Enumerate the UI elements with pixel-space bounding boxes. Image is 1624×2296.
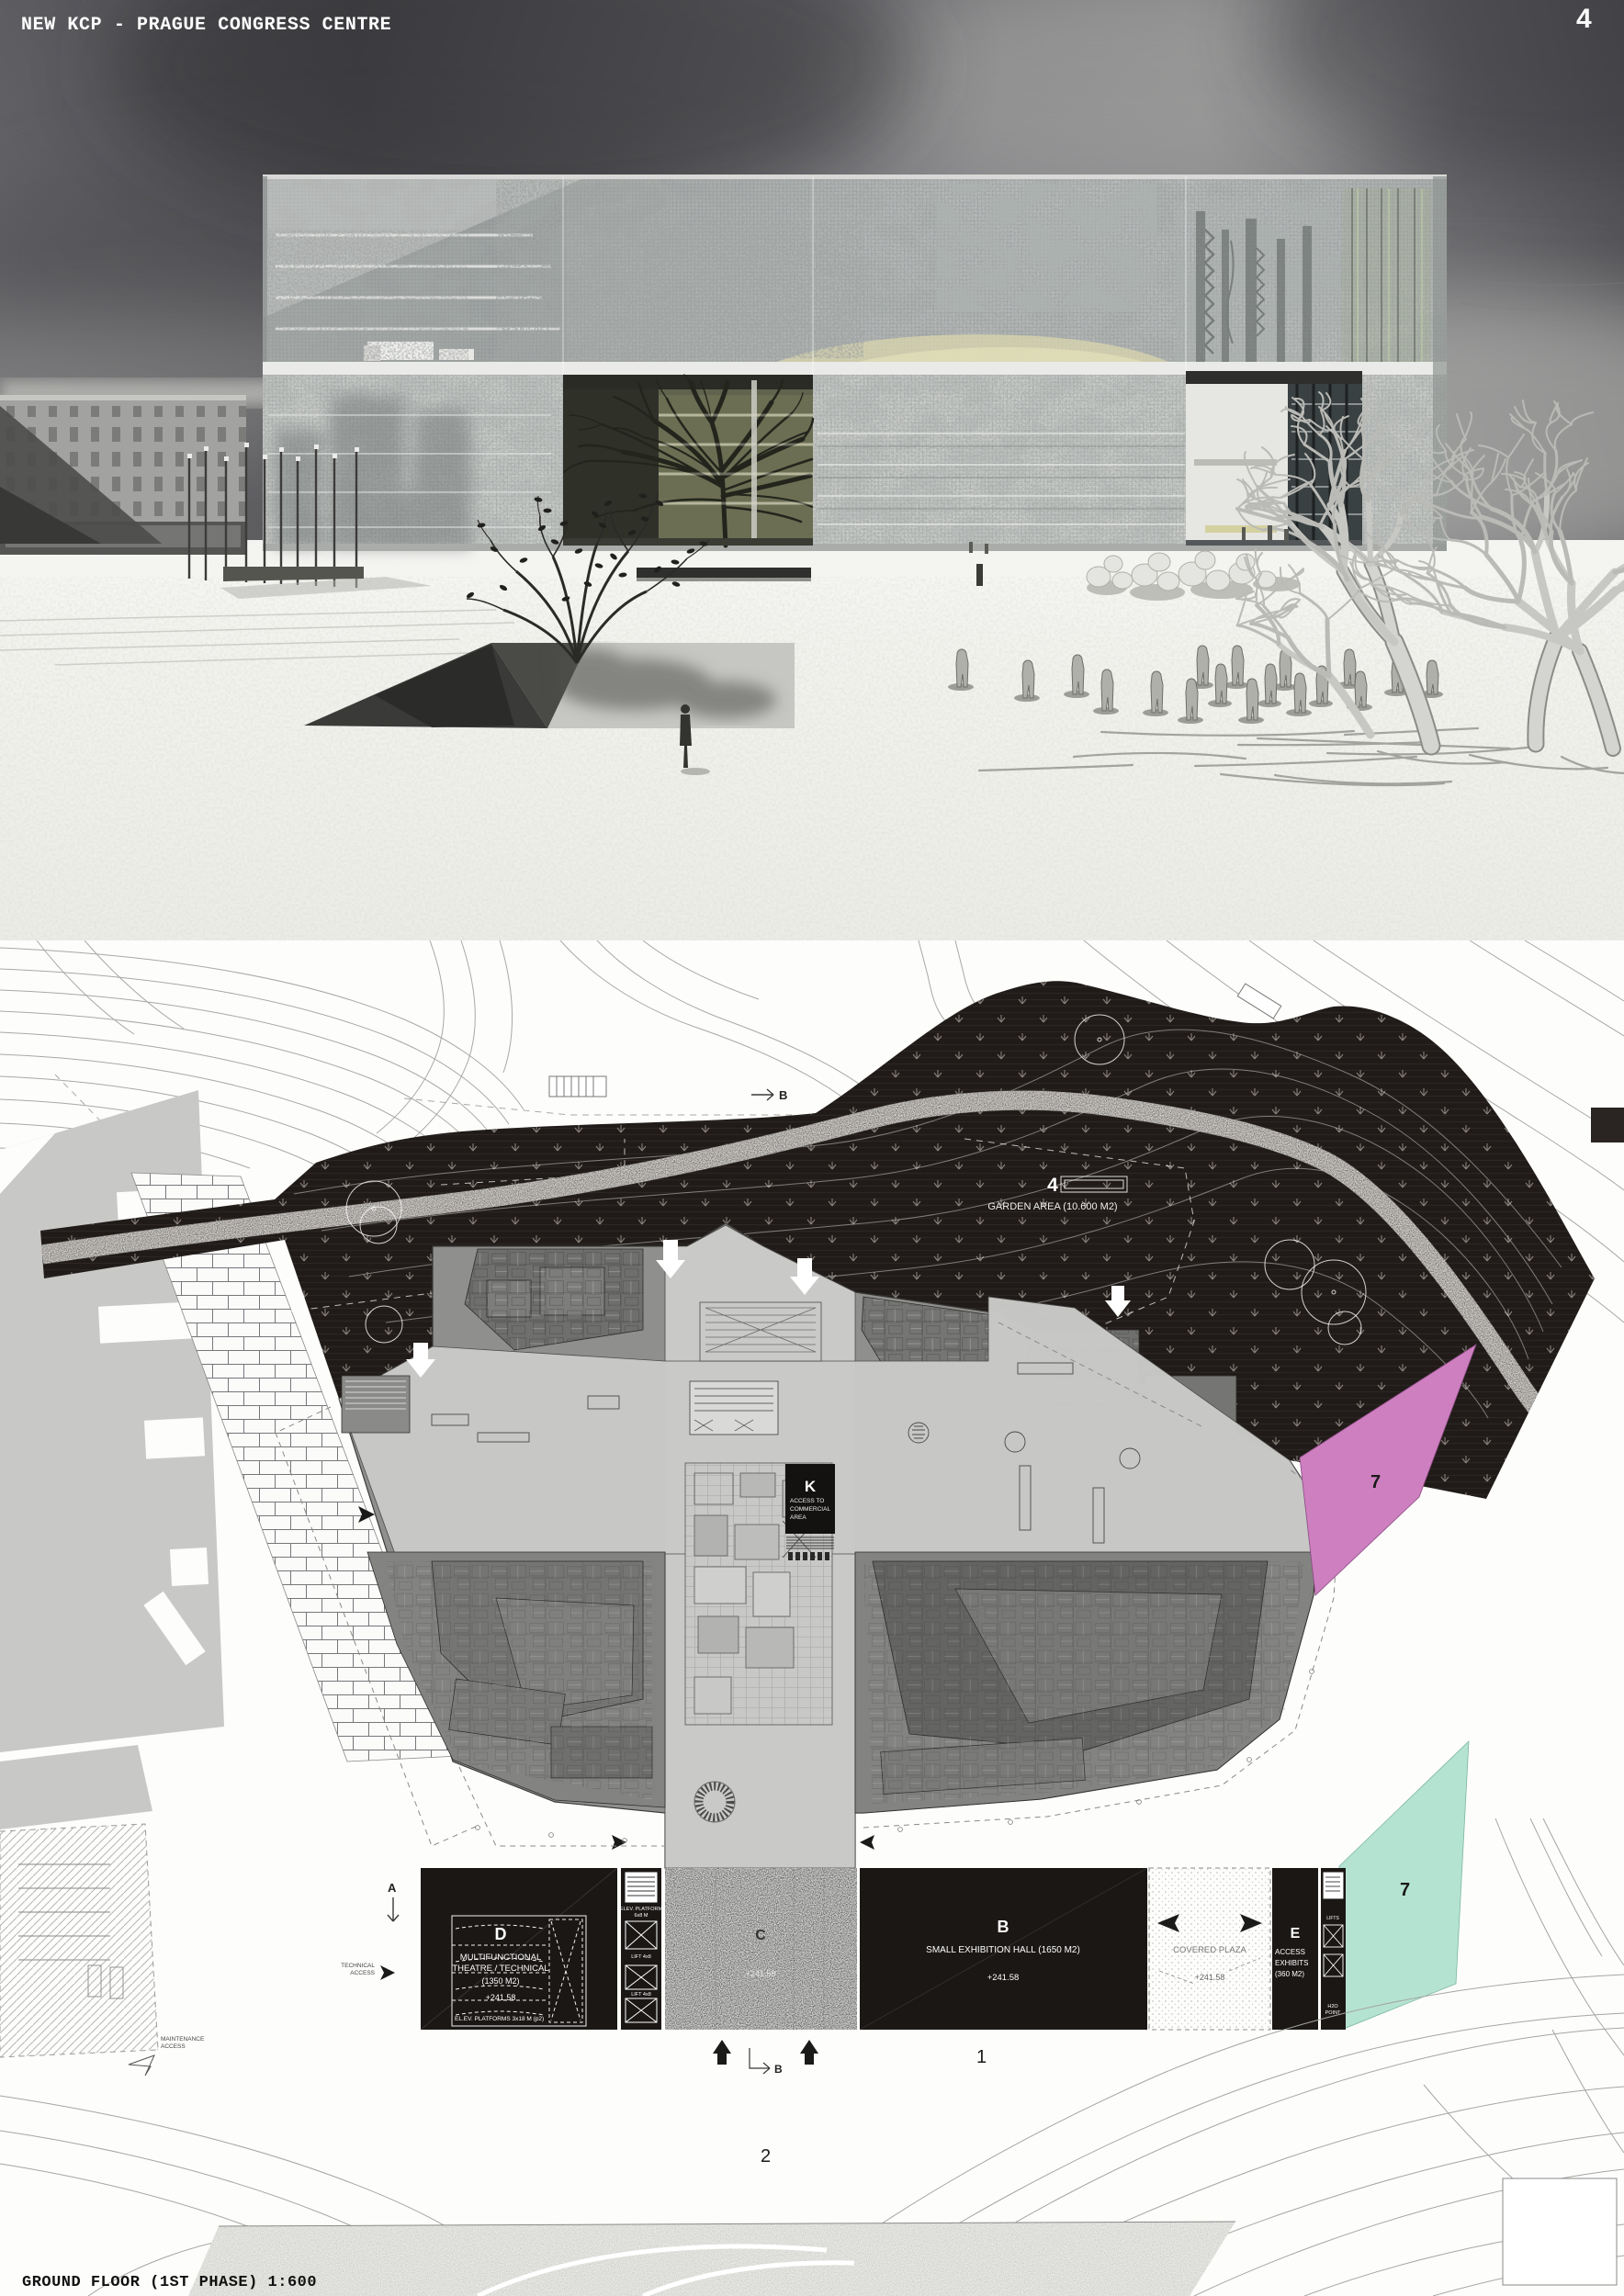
svg-text:+241.58: +241.58	[987, 1973, 1020, 1983]
svg-text:TECHNICAL: TECHNICAL	[341, 1963, 375, 1969]
svg-text:AREA: AREA	[790, 1514, 806, 1521]
svg-text:ACCESS: ACCESS	[161, 2043, 186, 2050]
svg-text:C: C	[755, 1928, 766, 1943]
svg-text:MAINTENANCE: MAINTENANCE	[161, 2036, 205, 2043]
svg-text:+241.58: +241.58	[746, 1969, 776, 1978]
svg-text:LIFT 4x8: LIFT 4x8	[631, 1954, 651, 1960]
svg-text:E: E	[1291, 1926, 1301, 1941]
svg-text:2: 2	[761, 2146, 771, 2167]
svg-text:(1350 M2): (1350 M2)	[481, 1976, 519, 1986]
svg-text:ACCESS: ACCESS	[1275, 1948, 1305, 1956]
svg-text:B: B	[998, 1918, 1009, 1936]
svg-text:+241.58: +241.58	[486, 1993, 516, 2002]
svg-text:SMALL EXHIBITION HALL (1650 M2: SMALL EXHIBITION HALL (1650 M2)	[926, 1945, 1080, 1955]
svg-text:EL.EV. PLATFORMS 3x18 M (p2): EL.EV. PLATFORMS 3x18 M (p2)	[455, 2016, 544, 2022]
svg-text:COMMERCIAL: COMMERCIAL	[790, 1506, 830, 1513]
svg-text:MULTIFUNCTIONAL: MULTIFUNCTIONAL	[460, 1953, 542, 1963]
svg-text:1: 1	[976, 2047, 987, 2067]
svg-text:(360 M2): (360 M2)	[1275, 1970, 1304, 1978]
svg-text:H2O: H2O	[1327, 2004, 1338, 2009]
svg-text:ACCESS TO: ACCESS TO	[790, 1498, 824, 1504]
svg-text:7: 7	[1400, 1880, 1410, 1900]
svg-text:B: B	[774, 2063, 783, 2076]
svg-text:+241.58: +241.58	[1195, 1973, 1225, 1982]
svg-text:GARDEN AREA (10.600 M2): GARDEN AREA (10.600 M2)	[987, 1201, 1117, 1212]
svg-text:4: 4	[1047, 1175, 1058, 1196]
svg-text:THEATRE / TECHNICAL: THEATRE / TECHNICAL	[452, 1964, 548, 1974]
svg-text:LIFT 4x8: LIFT 4x8	[631, 1992, 651, 1998]
svg-text:7: 7	[1370, 1472, 1381, 1492]
svg-text:LIFTS: LIFTS	[1326, 1916, 1339, 1921]
svg-text:ELEV. PLATFORM: ELEV. PLATFORM	[620, 1907, 663, 1912]
svg-text:A: A	[388, 1881, 397, 1895]
svg-text:EXHIBITS: EXHIBITS	[1275, 1959, 1308, 1967]
svg-text:K: K	[805, 1478, 817, 1495]
svg-text:D: D	[495, 1925, 507, 1943]
svg-text:GROUND FLOOR (1ST PHASE) 1:600: GROUND FLOOR (1ST PHASE) 1:600	[22, 2274, 317, 2291]
svg-text:ACCESS: ACCESS	[350, 1970, 375, 1976]
svg-text:COVERED PLAZA: COVERED PLAZA	[1173, 1945, 1246, 1955]
svg-text:6x8 M: 6x8 M	[635, 1913, 648, 1919]
svg-text:B: B	[779, 1088, 787, 1102]
